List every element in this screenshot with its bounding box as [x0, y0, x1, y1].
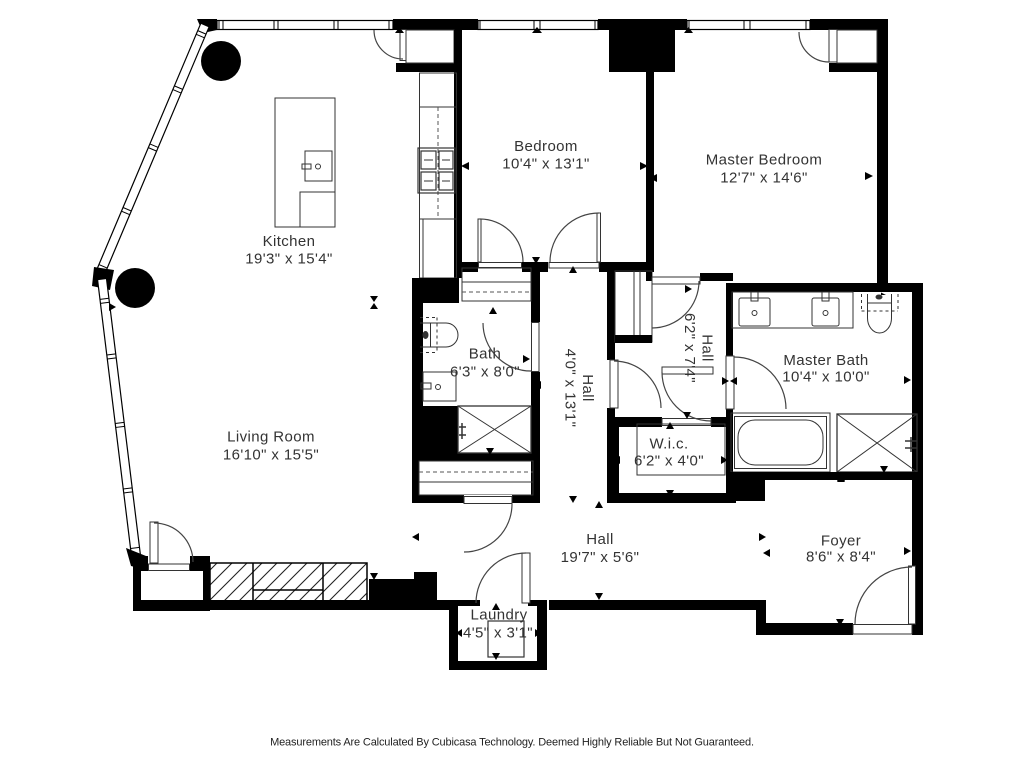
svg-text:6'2" x 7'4": 6'2" x 7'4" [681, 313, 698, 383]
svg-text:Measurements Are Calculated By: Measurements Are Calculated By Cubicasa … [270, 737, 754, 749]
svg-text:10'4" x 13'1": 10'4" x 13'1" [502, 156, 589, 173]
svg-text:10'4" x 10'0": 10'4" x 10'0" [782, 369, 869, 386]
svg-text:W.i.c.: W.i.c. [649, 436, 688, 453]
svg-text:12'7" x 14'6": 12'7" x 14'6" [720, 170, 807, 187]
svg-text:16'10" x 15'5": 16'10" x 15'5" [223, 447, 319, 464]
svg-text:6'2" x 4'0": 6'2" x 4'0" [634, 453, 704, 470]
svg-text:Hall: Hall [579, 374, 596, 401]
svg-text:19'7" x 5'6": 19'7" x 5'6" [561, 549, 640, 566]
svg-text:8'6" x 8'4": 8'6" x 8'4" [806, 549, 876, 566]
svg-text:Bath: Bath [469, 346, 501, 363]
svg-text:Laundry: Laundry [470, 607, 527, 624]
svg-text:Living Room: Living Room [227, 429, 315, 446]
svg-text:6'3" x 8'0": 6'3" x 8'0" [450, 364, 520, 381]
svg-text:Hall: Hall [586, 531, 613, 548]
svg-text:Kitchen: Kitchen [263, 233, 316, 250]
svg-text:Master Bedroom: Master Bedroom [706, 152, 822, 169]
svg-text:Master Bath: Master Bath [783, 352, 868, 369]
svg-text:4'5" x 3'1": 4'5" x 3'1" [463, 625, 533, 642]
svg-text:Hall: Hall [699, 334, 716, 361]
svg-text:19'3" x 15'4": 19'3" x 15'4" [245, 251, 332, 268]
svg-text:4'0" x 13'1": 4'0" x 13'1" [562, 349, 579, 428]
svg-text:Bedroom: Bedroom [514, 138, 578, 155]
svg-text:Foyer: Foyer [821, 533, 861, 550]
